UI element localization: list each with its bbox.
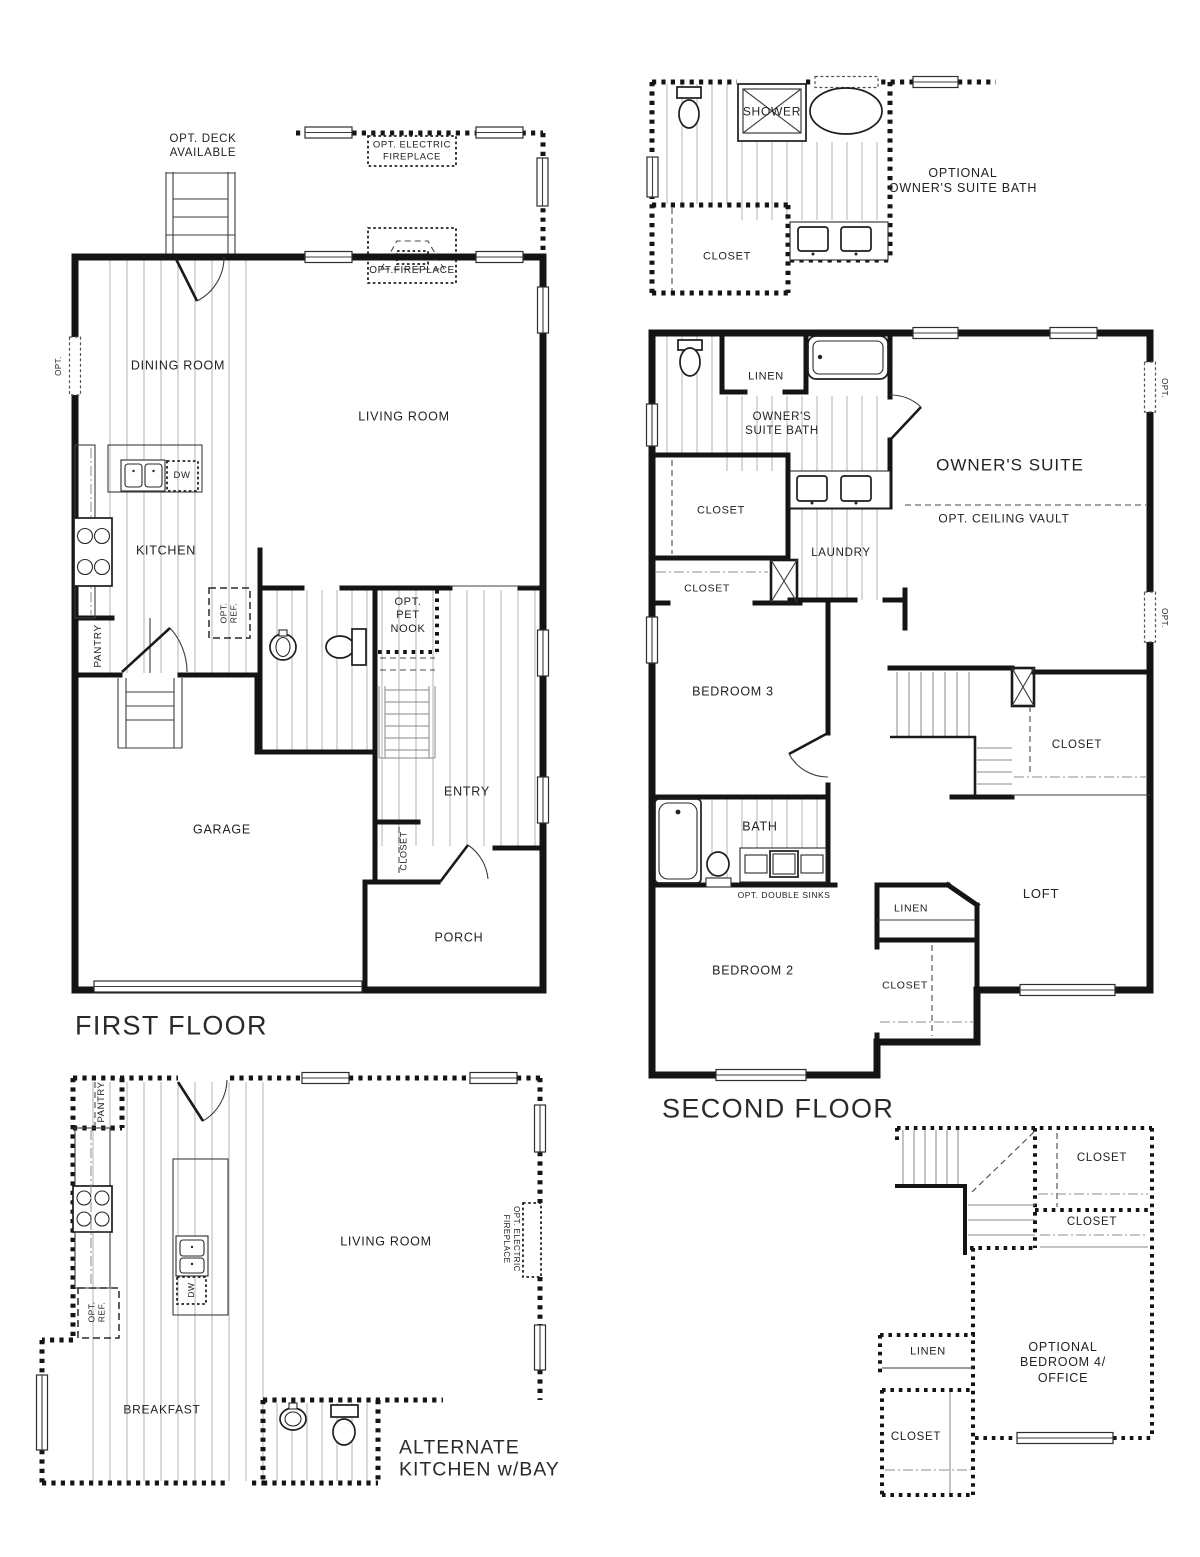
note-opt-ceiling-vault: OPT. CEILING VAULT	[938, 512, 1069, 527]
label-dw: DW	[174, 470, 191, 482]
note-opt-window-sf-top: OPT.	[1159, 378, 1169, 398]
room-owners-closet: CLOSET	[697, 504, 745, 517]
room-ak-pantry: PANTRY	[96, 1081, 108, 1122]
note-opt-window-sf-bottom: OPT.	[1159, 608, 1169, 628]
room-b4-closet-lower: CLOSET	[891, 1430, 941, 1444]
room-b4-closet-mid: CLOSET	[1067, 1215, 1117, 1229]
toilet-icon	[707, 852, 729, 876]
optional-bedroom4-title: OPTIONAL BEDROOM 4/ OFFICE	[1020, 1340, 1106, 1386]
stove-icon	[74, 518, 112, 586]
label-opt-ref: OPT. REF.	[219, 603, 240, 624]
second-floor-title: SECOND FLOOR	[662, 1093, 894, 1126]
room-shower: SHOWER	[743, 105, 801, 120]
note-opt-fireplace: OPT.FIREPLACE	[369, 265, 455, 277]
room-dining: DINING ROOM	[131, 358, 225, 373]
room-ak-living: LIVING ROOM	[340, 1234, 432, 1249]
owners-bath-door	[890, 407, 921, 440]
room-hall-closet: CLOSET	[684, 583, 730, 596]
room-stairs-closet: CLOSET	[1052, 738, 1102, 752]
bedroom3-door	[789, 733, 828, 754]
powder-toilet-icon	[331, 1405, 358, 1417]
floor-plan-sheet: FIRST FLOOR OPT. DECK AVAILABLE OPT. ELE…	[0, 0, 1200, 1552]
note-opt-double-sinks: OPT. DOUBLE SINKS	[738, 890, 831, 900]
room-kitchen: KITCHEN	[136, 543, 196, 558]
second-floor-stairs	[897, 672, 1012, 784]
stairs-down	[903, 1130, 1035, 1235]
room-bath: BATH	[742, 819, 777, 834]
alternate-kitchen-title: ALTERNATE KITCHEN w/BAY	[399, 1437, 560, 1482]
first-floor-plan	[70, 127, 549, 992]
optional-window	[1145, 592, 1156, 642]
room-entry-closet: CLOSET	[399, 831, 410, 870]
room-b4-linen: LINEN	[910, 1345, 946, 1358]
floor-plan-drawing	[0, 0, 1200, 1552]
note-ak-opt-electric-fireplace: OPT. ELECTRIC FIREPLACE	[501, 1206, 521, 1272]
room-owners-suite-bath: OWNER'S SUITE BATH	[745, 410, 819, 438]
optional-window	[70, 337, 81, 395]
room-pantry: PANTRY	[93, 624, 105, 667]
room-porch: PORCH	[435, 930, 484, 945]
room-linen-hall: LINEN	[894, 903, 928, 916]
alternate-kitchen-plan	[37, 1073, 546, 1484]
room-linen-bath: LINEN	[748, 370, 784, 383]
powder-toilet-icon	[326, 636, 354, 658]
room-owners-suite: OWNER'S SUITE	[936, 456, 1084, 477]
optional-window	[1145, 362, 1156, 412]
label-ak-opt-ref: OPT. REF.	[87, 1302, 108, 1323]
opt-electric-fireplace-box	[523, 1203, 541, 1277]
room-laundry: LAUNDRY	[811, 546, 871, 560]
deck-steps-icon	[166, 172, 235, 255]
room-entry: ENTRY	[444, 784, 490, 799]
garage-steps	[118, 678, 182, 748]
room-garage: GARAGE	[193, 822, 251, 837]
room-bedroom2: BEDROOM 2	[712, 963, 794, 978]
label-ak-dw: DW	[186, 1282, 196, 1297]
room-breakfast: BREAKFAST	[123, 1403, 200, 1418]
note-opt-window-ff: OPT.	[54, 356, 64, 376]
room-living: LIVING ROOM	[358, 409, 450, 424]
room-b4-closet-upper: CLOSET	[1077, 1151, 1127, 1165]
note-opt-pet-nook: OPT. PET NOOK	[390, 596, 425, 636]
room-loft: LOFT	[1023, 886, 1059, 902]
front-door	[440, 845, 468, 882]
room-ob-closet: CLOSET	[703, 250, 751, 263]
optional-owners-bath-title: OPTIONAL OWNER'S SUITE BATH	[889, 166, 1037, 197]
room-bedroom3: BEDROOM 3	[692, 684, 774, 699]
room-bedroom2-closet: CLOSET	[882, 980, 928, 993]
soaking-tub-icon	[810, 88, 882, 134]
note-opt-electric-fireplace: OPT. ELECTRIC FIREPLACE	[373, 139, 451, 162]
toilet-icon	[677, 87, 701, 98]
note-opt-deck: OPT. DECK AVAILABLE	[170, 132, 237, 160]
first-floor-title: FIRST FLOOR	[75, 1010, 268, 1043]
